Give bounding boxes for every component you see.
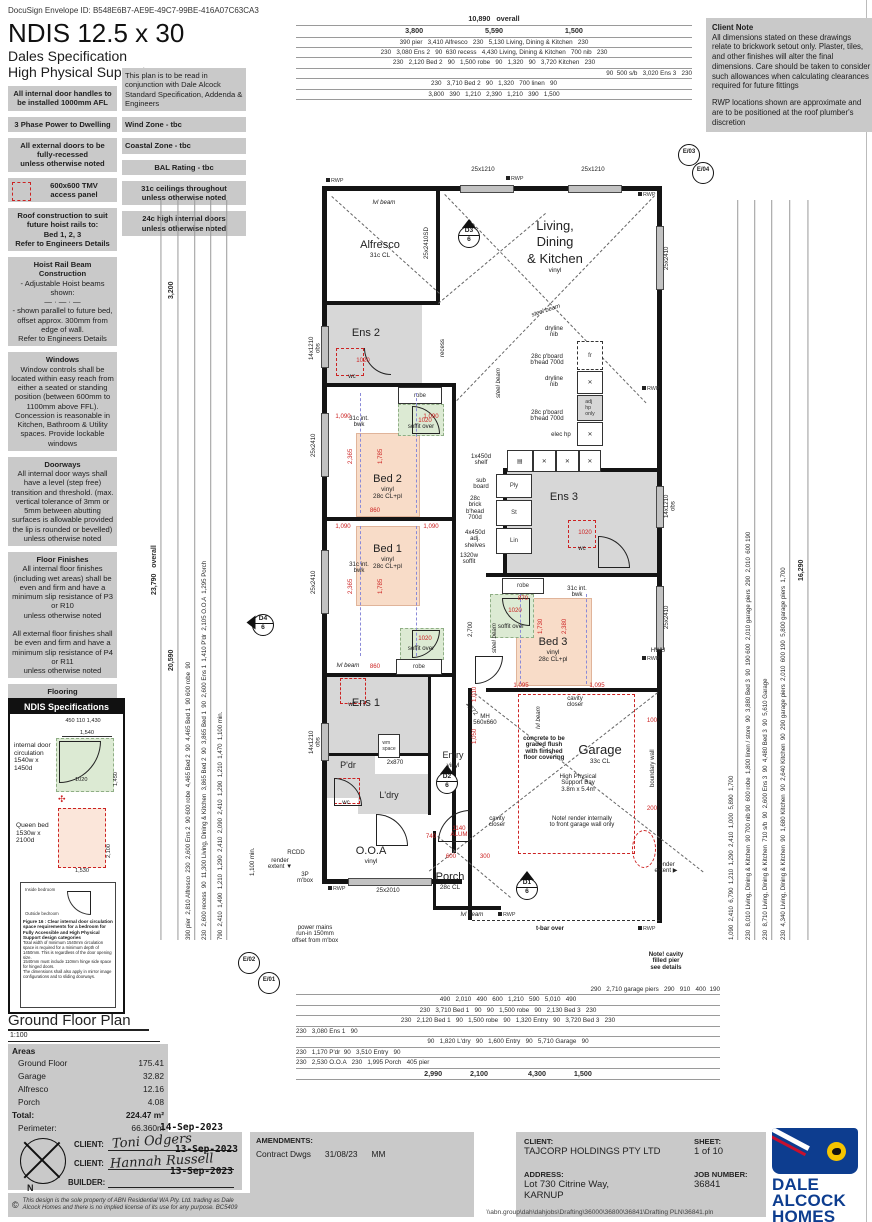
dimensions-bottom: 290 2,710 garage piers 290 910 400 190 4… (296, 985, 720, 1080)
red-dim: 860 (362, 508, 388, 514)
kitchen-unit: ✕ (577, 422, 603, 446)
client-info: CLIENT: TAJCORP HOLDINGS PTY LTD (524, 1137, 661, 1157)
red-dim: 1,090 (418, 524, 444, 530)
dimensions-top: 10,890 overall 3,800 5,590 1,500 390 pie… (296, 14, 692, 100)
pboard-label: 28c p'board b'head 700d (522, 354, 572, 367)
client-note-title: Client Note (712, 23, 872, 33)
red-dim: 1,090 (330, 524, 356, 530)
dim-row: 490 2,010 490 600 1,210 590 5,010 490 (296, 995, 720, 1005)
concrete-note: concrete to be graded flush with finishe… (512, 736, 576, 762)
note-windows: WindowsWindow controls shall be located … (8, 352, 117, 451)
marker-triangle (247, 616, 256, 630)
fridge-label: fr (588, 353, 592, 359)
steel-beam-label: steel beam (496, 353, 502, 413)
window-label: 25x2010 (358, 888, 418, 894)
lvl-beam-label: lvl beam (452, 912, 492, 918)
room-ldk: Living, Dining & Kitchenvinyl (500, 218, 610, 274)
store-label: St (511, 510, 517, 516)
robe-bed2: robe (398, 387, 442, 404)
ndis-dim: 2,100 (106, 818, 112, 858)
dim-col: 230 8,710 Living, Dining & Kitchen 710 s… (762, 200, 772, 940)
page-title: NDIS 12.5 x 30 (8, 18, 184, 49)
copyright-block: © This design is the sole property of AB… (8, 1193, 250, 1217)
red-dim: 2,380 (562, 606, 568, 646)
note-bal-rating: BAL Rating - tbc (122, 160, 246, 175)
min-1100-label: 1,100 min. (250, 842, 256, 882)
red-dim: 1,785 (378, 566, 384, 606)
red-dim: 300 (472, 854, 498, 860)
area-label: Ground Floor (18, 1058, 67, 1068)
area-row: Ground Floor175.41 (12, 1056, 164, 1069)
client-name: TAJCORP HOLDINGS PTY LTD (524, 1146, 661, 1157)
alum-door-label: 1140 ALUM (442, 826, 476, 839)
kitchen-sink: ▤ (507, 450, 533, 472)
shelf-label: 1x450d shelf (464, 454, 498, 467)
red-dim: 740 (418, 834, 444, 840)
docusign-date-3: 13-Sep-2023 (170, 1166, 233, 1177)
robe-label: robe (413, 664, 425, 670)
subboard-label: sub board (466, 478, 496, 491)
sheet-info: SHEET: 1 of 10 (694, 1137, 723, 1157)
wall (486, 573, 662, 577)
red-dim: 870 (510, 596, 536, 602)
red-dim: 1,095 (506, 683, 536, 689)
address-label: ADDRESS: (524, 1170, 609, 1179)
red-dim: 200 (642, 806, 662, 812)
store: St (496, 500, 532, 526)
wall (428, 673, 431, 815)
outside-bedroom-label: Outside bedroom (25, 911, 59, 916)
dim-row: 230 2,120 Bed 2 90 1,500 robe 90 1,320 9… (296, 58, 692, 68)
area-row: Porch4.08 (12, 1095, 164, 1108)
marker-e02: E/02 (238, 952, 260, 974)
area-total-row: Total:224.47 m² (12, 1108, 164, 1121)
ndis-dim: 1,530 (62, 868, 102, 874)
wm-space: wm space (378, 734, 400, 758)
area-row: Garage32.82 (12, 1069, 164, 1082)
marker-d3: D36 (458, 226, 480, 248)
room-ens2: Ens 2 (338, 324, 394, 340)
job-info: JOB NUMBER: 36841 (694, 1170, 748, 1190)
render-extent-left: render extent ▼ (262, 858, 298, 871)
elec-hp-label: elec hp (546, 432, 576, 438)
ndis-figure: Inside bedroom Outside bedroom Figure 16… (20, 882, 116, 1008)
area-value: 12.16 (143, 1084, 164, 1094)
notes-column-left: All internal door handles to be installe… (8, 86, 117, 789)
dryline-nib-label: dryline nib (534, 326, 574, 339)
window-label: 25x2410 (311, 416, 317, 474)
wc-label: wc (344, 374, 360, 380)
dimensions-left: 23,790 overall 3,200 20,590 390 pier 2,8… (150, 200, 228, 940)
linen: Lin (496, 528, 532, 554)
wc-label: wc (344, 702, 360, 708)
wall (657, 186, 662, 923)
red-dim: 1020 (412, 636, 438, 642)
job-number-value: 36841 (694, 1179, 748, 1190)
dim-row: 230 3,710 Bed 2 90 1,320 700 linen 90 (296, 79, 692, 89)
note-door-handles: All internal door handles to be installe… (8, 86, 117, 111)
note-roof-hoist: Roof construction to suit future hoist r… (8, 208, 117, 251)
amendment-row: Contract Dwgs 31/08/23 MM (256, 1149, 468, 1159)
address-info: ADDRESS: Lot 730 Citrine Way, KARNUP (524, 1170, 609, 1201)
ndis-figure-caption: Figure 16 : Clear internal door circulat… (23, 919, 113, 940)
window (321, 413, 329, 477)
marker-triangle (462, 219, 476, 228)
address-value: Lot 730 Citrine Way, KARNUP (524, 1179, 609, 1201)
sheet-border (866, 0, 867, 1222)
power-mains-note: power mains run-in 150mm offset from m'b… (280, 925, 350, 944)
sheet-value: 1 of 10 (694, 1146, 723, 1157)
room-bed3: Bed 3vinyl 28c CL+pl (518, 633, 588, 663)
dale-alcock-logo: DALE ALCOCK HOMES (772, 1128, 866, 1222)
room-ens3: Ens 3 (535, 488, 593, 504)
north-arrow: N (20, 1138, 66, 1184)
rwp-marker: RWP (506, 176, 523, 182)
areas-caption: Areas (12, 1046, 164, 1056)
client-note-p1: All dimensions stated on these drawings … (712, 33, 872, 91)
adj-shelves-label: 4x450d adj. shelves (460, 530, 490, 549)
window-label: 25x1210 (558, 167, 628, 173)
area-row: Alfresco12.16 (12, 1082, 164, 1095)
red-dim: 1,095 (582, 683, 612, 689)
rwp-marker: RWP (642, 656, 659, 662)
ndis-figure-note3: The dimensions shall also apply in mirro… (23, 970, 113, 980)
rwp-marker: RWP (638, 926, 655, 932)
cavity-closer-label: cavity closer (480, 816, 514, 829)
dim-col: 230 4,340 Living, Dining & Kitchen 90 1,… (780, 200, 790, 940)
dim-col: 23,790 overall (150, 200, 161, 940)
ground-floor-plan-block: Ground Floor Plan 1:100 Areas Ground Flo… (8, 1012, 168, 1138)
wall (322, 517, 456, 521)
amendment-initials: MM (372, 1149, 386, 1159)
dim-col: 20,590 (167, 380, 178, 940)
red-dim: 1020 (572, 530, 598, 536)
soffit-over-label: soffit over (494, 624, 528, 630)
area-label: Porch (18, 1097, 40, 1107)
red-dim: 1,730 (538, 606, 544, 646)
lvl-beam-label: lvl beam (536, 698, 542, 738)
window-label: 14x1210 obs (309, 720, 322, 764)
window-label: 25x2410SD (424, 213, 430, 273)
dim-col: 790 2,410 1,490 1,210 1,290 2,410 2,090 … (217, 200, 227, 940)
robe-bed1: robe (396, 659, 442, 675)
note-floor-finishes: Floor FinishesAll internal floor finishe… (8, 552, 117, 678)
amendments-label: AMENDMENTS: (256, 1136, 468, 1145)
ndis-title: NDIS Specifications (10, 700, 123, 714)
area-value: 32.82 (143, 1071, 164, 1081)
adj-hp-space: adj hp only (577, 395, 603, 421)
dim-row: 390 pier 3,410 Alfresco 230 5,130 Living… (296, 38, 692, 48)
pantry-label: Ply (510, 483, 518, 489)
amendment-desc: Contract Dwgs (256, 1149, 311, 1159)
ndis-figure-sketch: Inside bedroom Outside bedroom (23, 885, 113, 919)
window (321, 326, 329, 368)
dim-row: 2,990 2,100 4,300 1,500 (296, 1069, 720, 1081)
sheet-label: SHEET: (694, 1137, 723, 1146)
red-dim: 1,050 (472, 720, 478, 752)
copyright-icon: © (12, 1200, 19, 1210)
amendment-date: 31/08/23 (325, 1149, 358, 1159)
wall (436, 186, 440, 305)
dim-row: 230 2,120 Bed 1 90 1,500 robe 90 1,320 E… (296, 1016, 720, 1026)
ndis-dim: 450 110 1,430 (50, 718, 116, 724)
ndis-dim: 1,450 (113, 744, 119, 786)
dim-col: 16,290 (797, 200, 808, 940)
dim-col: 1,090 2,410 6,790 1,210 1,290 2,410 1,00… (728, 200, 738, 940)
scale-label: 1:100 (8, 1031, 160, 1042)
room-pdr: P'dr (330, 756, 366, 772)
door-swing-icon: ✣ (58, 794, 66, 805)
marker-triangle (520, 871, 534, 880)
lvl-beam-label: lvl beam (364, 200, 404, 206)
ndis-item2-label: Queen bed 1530w x 2100d (16, 822, 56, 845)
door-arc (475, 656, 503, 684)
window-label: 14x1210 obs (664, 483, 677, 529)
fridge-space: fr (577, 341, 603, 370)
pboard-label: 28c p'board b'head 700d (522, 410, 572, 423)
dim-row: 3,800 5,590 1,500 (296, 26, 692, 38)
steel-beam-label: steel beam (492, 608, 498, 668)
int-bwk-label: 31c int. bwk (560, 586, 594, 599)
area-value: 175.41 (138, 1058, 164, 1068)
marker-e04: E/04 (692, 162, 714, 184)
rwp-marker: RWP (328, 886, 345, 892)
cavity-pier-note: Note! cavity filled pier see details (640, 952, 692, 971)
cavity-closer-label: cavity closer (558, 696, 592, 709)
dim-row: 290 2,710 garage piers 290 910 400 190 (296, 985, 720, 995)
red-dim: 1,785 (378, 436, 384, 476)
ndis-circulation-diagram: 1020 (56, 738, 114, 792)
ndis-dim: 1,540 (62, 730, 112, 737)
dimensions-right: 1,090 2,410 6,790 1,210 1,290 2,410 1,00… (728, 200, 808, 940)
docusign-date-1: 14-Sep-2023 (160, 1122, 223, 1133)
note-3phase: 3 Phase Power to Dwelling (8, 117, 117, 132)
red-dim: 1020 (502, 608, 528, 614)
signature-block: N CLIENT: Toni Odgers CLIENT: Hannah Rus… (8, 1132, 242, 1190)
kitchen-unit: ✕ (556, 450, 579, 472)
dim-col: 230 8,010 Living, Dining & Kitchen 90 70… (745, 200, 755, 940)
red-dim: 1,090 (330, 414, 356, 420)
soffit-label: 1320w soffit (452, 553, 486, 566)
rcdd-label: RCDD (282, 850, 310, 856)
subtitle-1: Dales Specification (8, 48, 127, 64)
dim-row: 10,890 overall (296, 14, 692, 26)
docusign-envelope-id: DocuSign Envelope ID: B548E6B7-AE9E-49C7… (8, 6, 259, 15)
marker-triangle (440, 765, 454, 774)
areas-table: Areas Ground Floor175.41 Garage32.82 Alf… (8, 1044, 168, 1138)
soffit-over-label: soffit over (404, 646, 438, 652)
ndis-dim: 1020 (75, 777, 87, 783)
note-doorways: DoorwaysAll internal door ways shall hav… (8, 457, 117, 546)
docusign-date-2: 13-Sep-2023 (175, 1144, 238, 1155)
window-label: 25x2410 (664, 590, 670, 645)
dim-col: 230 2,600 recess 90 11,300 Living, Dinin… (201, 200, 211, 940)
red-dim: 860 (362, 664, 388, 670)
window-label: 14x1210 obs (309, 326, 322, 370)
rwp-marker: RWP (498, 912, 515, 918)
client-note: Client Note All dimensions stated on the… (706, 18, 872, 132)
pantry: Ply (496, 474, 532, 498)
marker-d4: D46 (252, 614, 274, 636)
window-label: 25x2410 (311, 553, 317, 611)
note-external-doors: All external doors to be fully-recessed … (8, 138, 117, 172)
copyright-text: This design is the sole property of ABN … (23, 1198, 246, 1213)
room-bed2: Bed 2vinyl 28c CL+pl (360, 470, 415, 500)
queen-bed-zone (58, 808, 106, 868)
dim-col: 390 pier 2,810 Alfresco 230 2,600 Ens 2 … (185, 200, 195, 940)
ndis-specifications: NDIS Specifications 450 110 1,430 1,540 … (8, 698, 125, 1014)
note-tmv-panel: 600x600 TMV access panel (8, 178, 117, 203)
window (321, 550, 329, 614)
robe-label: robe (517, 583, 529, 589)
marker-d1: D16 (516, 878, 538, 900)
recess-label: recess (440, 328, 446, 368)
window-label: 25x1210 (448, 167, 518, 173)
north-label: N (27, 1183, 34, 1193)
client1-label: CLIENT: (74, 1140, 104, 1149)
linen-label: Lin (510, 538, 518, 544)
job-number-label: JOB NUMBER: (694, 1170, 748, 1179)
wall (433, 906, 501, 910)
rwp-marker: RWP (642, 386, 659, 392)
builder-line (108, 1187, 234, 1188)
note-read-in-conjunction: This plan is to be read in conjunction w… (122, 68, 246, 111)
boundary-wall-label: boundary wall (650, 738, 656, 798)
red-dim: 2,365 (348, 436, 354, 476)
note-hoist-rail: Hoist Rail Beam Construction- Adjustable… (8, 257, 117, 346)
project-info-block: CLIENT: TAJCORP HOLDINGS PTY LTD ADDRESS… (516, 1132, 766, 1217)
flag-swan (832, 1148, 841, 1155)
amendments-block: AMENDMENTS: Contract Dwgs 31/08/23 MM (250, 1132, 474, 1217)
note-wind-zone: Wind Zone - tbc (122, 117, 246, 132)
red-dim: 1020 (412, 418, 438, 424)
marker-e01: E/01 (258, 972, 280, 994)
tmv-panel-icon (12, 182, 31, 201)
kitchen-unit: ✕ (533, 450, 556, 472)
door-arc (67, 891, 91, 915)
kitchen-unit: ✕ (579, 450, 601, 472)
render-extent-right: render extent ▶ (648, 862, 684, 875)
red-dim: 1020 (350, 358, 376, 364)
dim-row: 230 1,170 P'dr 90 3,510 Entry 90 (296, 1048, 720, 1058)
hwu-label: HWU (638, 648, 678, 654)
perimeter-label: Perimeter: (18, 1123, 57, 1133)
file-path: \\abn.group\dah\dahjobs\Drafting\36000\3… (380, 1209, 820, 1216)
tbar-label: t-bar over (520, 926, 580, 932)
brick-bhead-label: 28c brick b'head 700d (460, 496, 490, 522)
ndis-figure-note1: Total width of minimum 1540mm circulatio… (23, 941, 113, 960)
soffit-over-label: soffit over (404, 424, 438, 430)
garage-tbar-line (472, 920, 660, 921)
door-size-label: 2x870 (382, 760, 408, 766)
red-dim: 2,365 (348, 566, 354, 606)
red-dim: 600 (438, 854, 464, 860)
wm-space-label: wm space (382, 740, 395, 752)
window (321, 723, 329, 761)
inside-bedroom-label: Inside bedroom (25, 887, 55, 892)
total-value: 224.47 m² (126, 1110, 164, 1120)
total-label: Total: (12, 1110, 34, 1120)
door-arc (376, 814, 408, 846)
window (568, 185, 622, 193)
dim-row: 230 3,080 Ens 1 90 (296, 1027, 720, 1037)
drawing-sheet: { "hdr": { "docusign": "DocuSign Envelop… (0, 0, 872, 1222)
builder-label: BUILDER: (68, 1178, 105, 1187)
rwp-marker: RWP (638, 192, 655, 198)
meterbox-label: 3P m'box (292, 872, 318, 885)
dim-row: 230 2,530 O.O.A 230 1,995 Porch 405 pier (296, 1058, 720, 1068)
dim-row: 3,800 390 1,210 2,390 1,210 390 1,500 (296, 90, 692, 100)
kitchen-unit: ✕ (577, 371, 603, 394)
adj-hp-label: adj hp only (585, 399, 595, 417)
client-label: CLIENT: (524, 1137, 661, 1146)
render-note: Note! render internally to front garage … (532, 816, 632, 829)
dim-row: 230 3,710 Bed 1 90 90 1,500 robe 90 2,13… (296, 1006, 720, 1016)
room-ldry: L'dry (366, 786, 412, 802)
client-note-p2: RWP locations shown are approximate and … (712, 98, 872, 127)
area-value: 4.08 (148, 1097, 164, 1107)
robe-bed3: robe (502, 578, 544, 594)
rwp-marker: RWP (326, 178, 343, 184)
dryline-nib-label: dryline nib (534, 376, 574, 389)
ground-floor-title: Ground Floor Plan (8, 1012, 149, 1031)
dim-2700: 2,700 (468, 616, 474, 642)
wc-label: wc (574, 546, 590, 552)
area-label: Garage (18, 1071, 46, 1081)
room-porch: Porch28c CL (420, 868, 480, 892)
dale-alcock-flag-icon (772, 1128, 858, 1174)
kitchen-bench: ▤ ✕ ✕ ✕ (507, 450, 601, 470)
window-label: 25x2410 (664, 233, 670, 283)
client2-label: CLIENT: (74, 1159, 104, 1168)
room-alfresco: Alfresco31c CL (340, 236, 420, 260)
area-label: Alfresco (18, 1084, 48, 1094)
marker-d2: D26 (436, 772, 458, 794)
dim-row: 230 3,080 Ens 2 90 630 recess 4,430 Livi… (296, 48, 692, 58)
floor-plan: robe robe robe 25x1210 25x1210 25x2410SD… (320, 178, 670, 948)
red-dim: 100 (642, 718, 662, 724)
window (460, 185, 514, 193)
wc-label: wc (338, 800, 354, 806)
ndis-item1-label: internal door circulation 1540w x 1450d (14, 742, 52, 772)
dim-row: 90 1,820 L'dry 90 1,600 Entry 90 5,710 G… (296, 1037, 720, 1047)
note-coastal-zone: Coastal Zone - tbc (122, 138, 246, 153)
dim-col: 3,200 (167, 200, 178, 380)
dim-row: 90 500 s/b 3,020 Ens 3 230 (296, 69, 692, 79)
hps-bay-label: High Physical Support Bay 3.8m x 5.4m (548, 774, 608, 793)
